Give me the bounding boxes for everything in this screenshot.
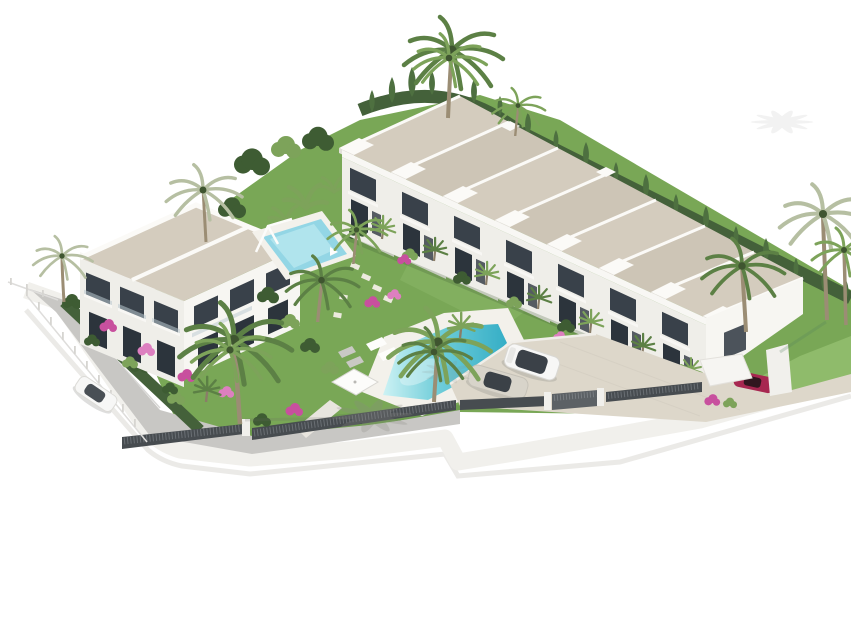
render-canvas: Computer-generated aerial rendering on a… [0, 0, 851, 625]
gate-pillar [242, 419, 250, 436]
carport-wall [766, 344, 792, 396]
architectural-render: Aerial 3D render of a new-build townhous… [0, 0, 851, 625]
